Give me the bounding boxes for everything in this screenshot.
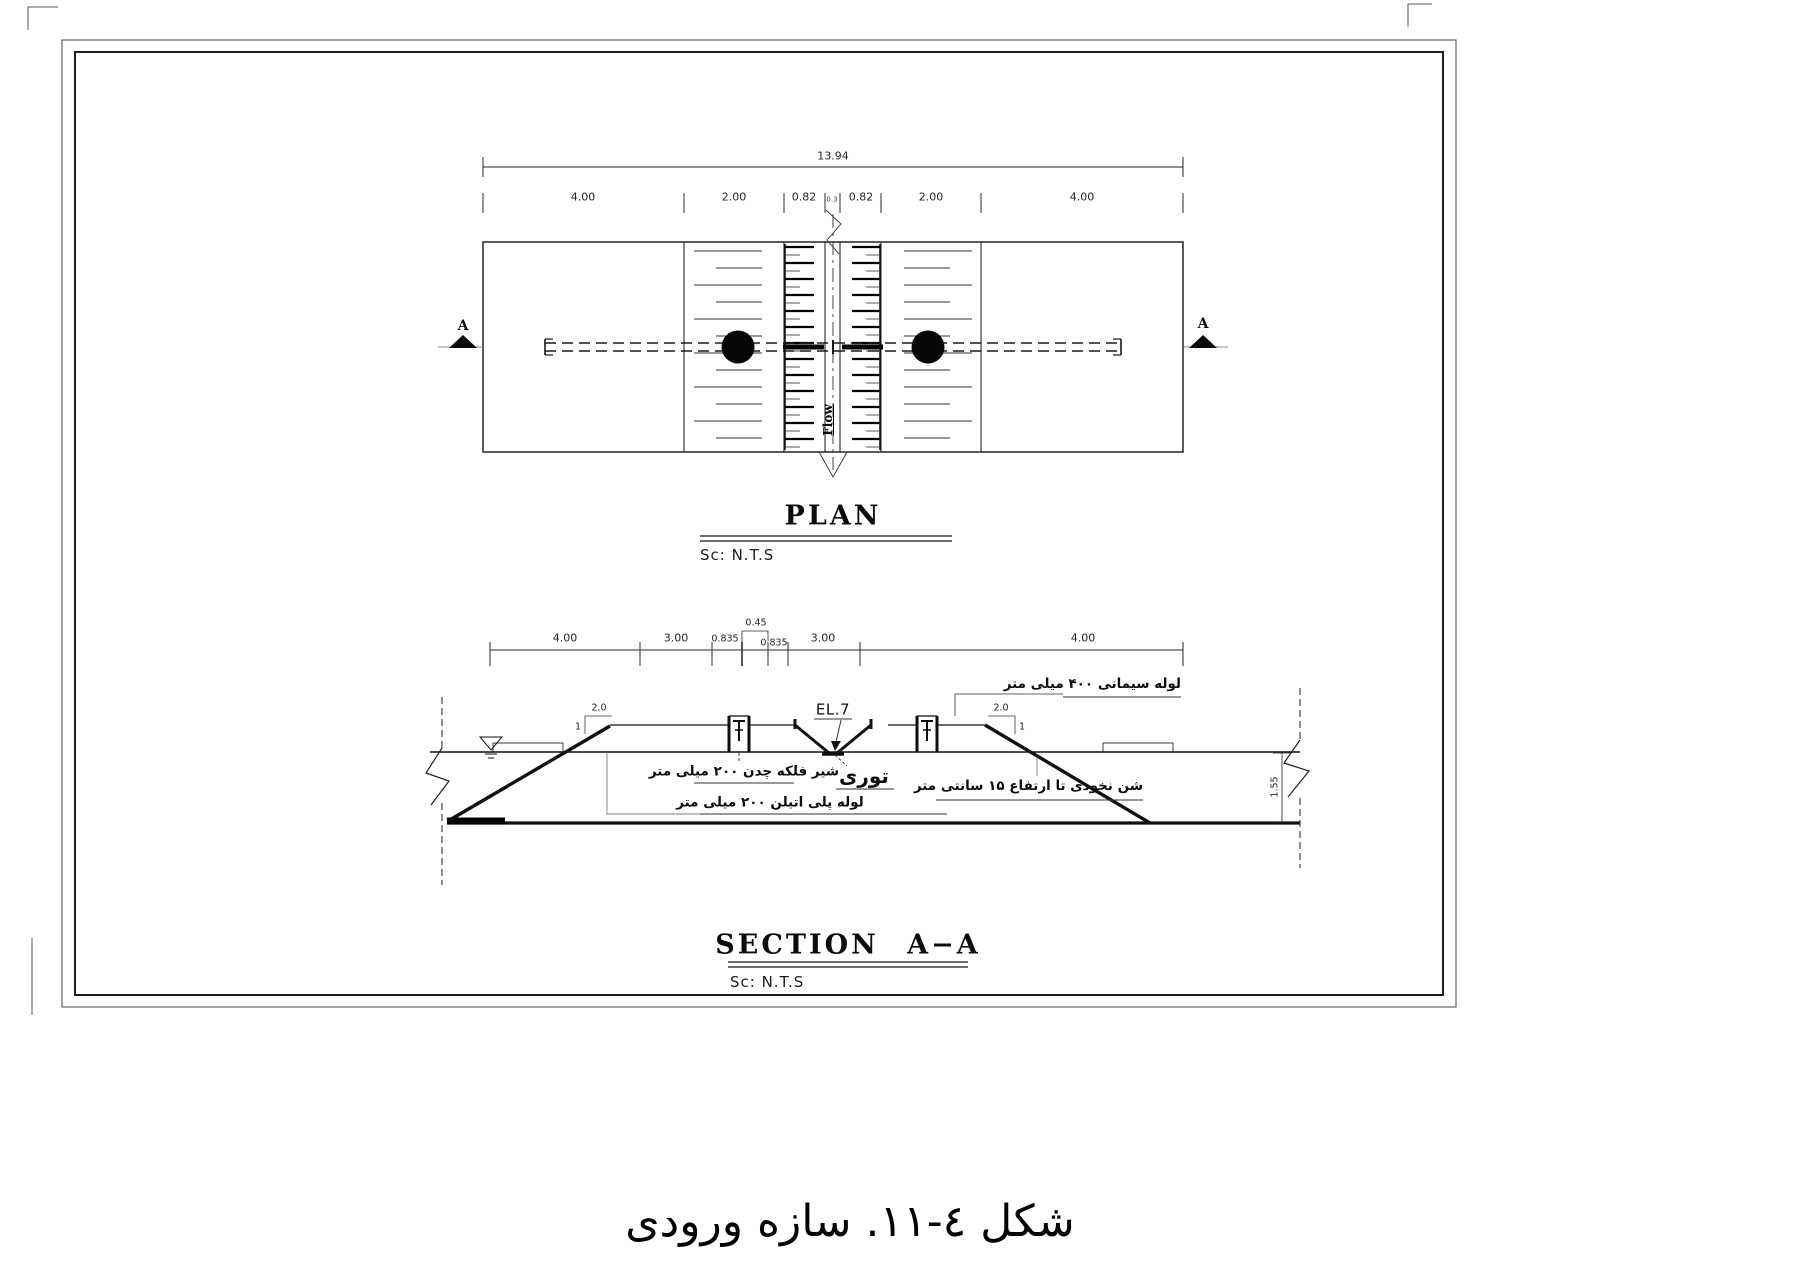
slope-ratio-h-right: 2.0	[993, 703, 1008, 713]
figure-caption: شکل ٤-١١. سازه ورودی	[625, 1200, 1075, 1244]
section-scale-label: Sc: N.T.S	[730, 975, 804, 990]
drawing-linework	[0, 0, 1798, 1276]
annotation-cement-pipe: لوله سیمانی ۴۰۰ میلی متر	[1000, 678, 1181, 692]
plan-dim-seg-5: 0.82	[849, 192, 874, 203]
slope-ratio-v-left: 1	[575, 722, 581, 732]
section-valves	[729, 716, 937, 752]
section-dim-seg-2: 3.00	[664, 633, 689, 644]
plan-scale-label: Sc: N.T.S	[700, 548, 774, 563]
section-dim-depth: 1.55	[1270, 776, 1280, 797]
flow-label: Flow	[822, 404, 834, 435]
section-dim-seg-5: 0.835	[760, 638, 787, 648]
section-dim-seg-1: 4.00	[553, 633, 578, 644]
water-level-symbol	[480, 737, 502, 758]
annotation-pe-pipe: لوله پلی اتیلن ۲۰۰ میلی متر	[676, 796, 863, 810]
plan-dimension-lines	[483, 157, 1183, 213]
drawing-sheet: { "figure": { "caption": "شکل ٤-١١. سازه…	[0, 0, 1798, 1276]
section-dim-seg-4: 0.45	[745, 618, 766, 628]
section-title: SECTION A−A	[715, 932, 980, 959]
slope-ratio-v-right: 1	[1019, 722, 1025, 732]
plan-dim-seg-3: 0.82	[792, 192, 817, 203]
section-cut-letter-right: A	[1198, 317, 1209, 331]
section-dim-seg-6: 3.00	[811, 633, 836, 644]
plan-dim-seg-2: 2.00	[722, 192, 747, 203]
plan-pipe	[545, 339, 1121, 355]
annotation-gate-valve: شیر فلکه چدن ۲۰۰ میلی متر	[649, 765, 839, 779]
plan-dim-seg-4: 0.3	[826, 197, 837, 204]
section-cut-letter-left: A	[458, 319, 469, 333]
section-title-underline	[728, 962, 968, 967]
plan-dim-seg-1: 4.00	[571, 192, 596, 203]
section-dim-seg-7: 4.00	[1071, 633, 1096, 644]
plan-dim-seg-7: 4.00	[1070, 192, 1095, 203]
plan-dim-seg-6: 2.00	[919, 192, 944, 203]
section-dim-seg-3: 0.835	[711, 634, 738, 644]
annotation-gravel: شن نخودی تا ارتفاع ۱۵ سانتی متر	[940, 780, 1143, 794]
corner-marks	[28, 4, 1432, 1015]
annotation-screen: توری	[839, 766, 889, 786]
sheet-frame	[62, 40, 1456, 1007]
elevation-label: EL.7	[816, 703, 850, 718]
plan-dim-total: 13.94	[817, 151, 849, 162]
plan-title-underline	[700, 536, 952, 541]
plan-title: PLAN	[785, 503, 882, 530]
slope-ratio-h-left: 2.0	[591, 703, 606, 713]
